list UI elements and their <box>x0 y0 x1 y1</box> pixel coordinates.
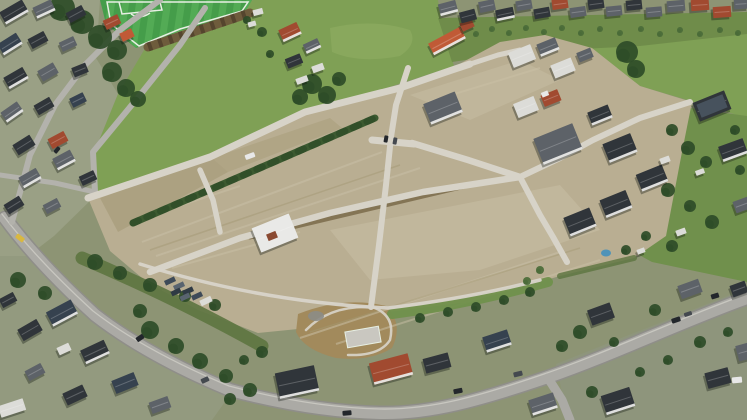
bush <box>617 30 623 36</box>
tree-canopy <box>219 374 227 382</box>
tree-canopy <box>192 359 202 369</box>
tree-canopy <box>266 53 271 58</box>
tree-canopy <box>489 28 493 32</box>
aerial-photo-stage <box>0 0 747 420</box>
tree-canopy <box>332 77 340 85</box>
tree <box>616 41 638 63</box>
tree-canopy <box>209 303 216 310</box>
tree <box>730 125 740 135</box>
bush <box>677 27 683 33</box>
tree-canopy <box>473 33 477 37</box>
tree-canopy <box>443 311 449 317</box>
tree-canopy <box>578 32 582 36</box>
tree-canopy <box>168 344 178 354</box>
tree-canopy <box>681 146 689 154</box>
bush <box>717 27 723 33</box>
tree-canopy <box>143 283 151 291</box>
tree <box>332 72 346 86</box>
tree <box>243 383 257 397</box>
tree-canopy <box>638 28 642 32</box>
bush <box>735 30 741 36</box>
tree-canopy <box>523 280 528 285</box>
tree-canopy <box>243 19 248 24</box>
tree <box>130 91 146 107</box>
tree-canopy <box>627 66 638 77</box>
tree-canopy <box>239 359 245 365</box>
bush <box>523 25 529 31</box>
tree <box>499 295 509 305</box>
tree <box>87 254 103 270</box>
tree <box>627 60 645 78</box>
tree <box>666 240 678 252</box>
tree-canopy <box>257 31 263 37</box>
tree <box>257 27 267 37</box>
tree-canopy <box>525 291 531 297</box>
bush <box>541 29 547 35</box>
tree <box>573 325 587 339</box>
house <box>688 0 709 13</box>
tree-canopy <box>224 397 231 404</box>
tree <box>641 231 651 241</box>
tree-canopy <box>243 388 251 396</box>
tree <box>684 200 696 212</box>
tree-canopy <box>499 299 505 305</box>
tree-canopy <box>609 341 615 347</box>
tree-canopy <box>735 32 739 36</box>
tree-canopy <box>621 249 627 255</box>
garden-pool <box>601 250 611 257</box>
tree <box>38 286 52 300</box>
car <box>342 410 351 416</box>
bush <box>536 266 544 274</box>
tree-canopy <box>536 269 541 274</box>
house <box>710 6 731 21</box>
bush <box>523 277 531 285</box>
tree <box>471 302 481 312</box>
tree <box>143 278 157 292</box>
tree-canopy <box>89 33 103 47</box>
tree <box>318 86 336 104</box>
tree-canopy <box>649 308 656 315</box>
bush <box>266 50 274 58</box>
tree <box>681 141 695 155</box>
tree-canopy <box>108 47 120 59</box>
tree-canopy <box>617 32 621 36</box>
tree-canopy <box>523 27 527 31</box>
tree-canopy <box>735 169 741 175</box>
tree-canopy <box>684 204 691 211</box>
tree <box>705 215 719 229</box>
tree <box>141 321 159 339</box>
tree <box>219 369 233 383</box>
tree-canopy <box>559 27 563 31</box>
tree-canopy <box>103 69 115 81</box>
tree <box>239 355 249 365</box>
tree-canopy <box>705 220 713 228</box>
tree-canopy <box>130 97 140 107</box>
bush <box>638 26 644 32</box>
house <box>731 0 747 12</box>
tree-canopy <box>717 29 721 33</box>
tree-canopy <box>677 29 681 33</box>
tree <box>621 245 631 255</box>
tree-canopy <box>113 271 121 279</box>
tree-canopy <box>663 359 669 365</box>
tree <box>635 367 645 377</box>
tree <box>443 307 453 317</box>
tree-canopy <box>117 85 128 96</box>
tree-canopy <box>292 95 302 105</box>
tree-canopy <box>700 160 707 167</box>
tree <box>586 386 598 398</box>
tree-canopy <box>697 33 701 37</box>
car <box>732 377 742 384</box>
tree <box>102 62 122 82</box>
bush <box>597 26 603 32</box>
tree <box>700 156 712 168</box>
tree-canopy <box>506 32 510 36</box>
tree-canopy <box>666 244 673 251</box>
tree-canopy <box>10 278 20 288</box>
tree-canopy <box>556 344 563 351</box>
tree-canopy <box>657 33 661 37</box>
tree <box>292 89 308 105</box>
spoil-heap <box>308 311 324 321</box>
house <box>664 0 685 15</box>
bush <box>657 31 663 37</box>
tree <box>649 304 661 316</box>
tree-canopy <box>256 350 263 357</box>
tree-canopy <box>666 128 673 135</box>
bush <box>697 31 703 37</box>
bush <box>489 26 495 32</box>
tree <box>735 165 745 175</box>
house <box>603 5 622 19</box>
tree <box>10 272 26 288</box>
tree <box>133 304 147 318</box>
tree <box>666 124 678 136</box>
tree-canopy <box>597 28 601 32</box>
tree-canopy <box>723 331 729 337</box>
tree-canopy <box>541 31 545 35</box>
tree-canopy <box>573 330 581 338</box>
bush <box>578 30 584 36</box>
tree <box>556 340 568 352</box>
tree <box>192 353 208 369</box>
bush <box>559 25 565 31</box>
tree <box>609 337 619 347</box>
tree-canopy <box>661 188 669 196</box>
tree <box>663 355 673 365</box>
tree-canopy <box>87 260 97 270</box>
tree-canopy <box>635 371 641 377</box>
house <box>623 0 642 13</box>
tree <box>525 287 535 297</box>
bush <box>473 31 479 37</box>
tree-canopy <box>641 235 647 241</box>
tree-canopy <box>38 291 46 299</box>
tree <box>224 393 236 405</box>
tree <box>723 327 733 337</box>
tree-canopy <box>694 340 701 347</box>
tree <box>168 338 184 354</box>
tree-canopy <box>133 309 141 317</box>
bush <box>506 30 512 36</box>
house <box>567 6 587 21</box>
tree-canopy <box>617 49 630 62</box>
tree <box>694 336 706 348</box>
tree <box>256 346 268 358</box>
meadow-light-patch <box>330 23 412 59</box>
house <box>643 6 662 20</box>
tree-canopy <box>730 129 736 135</box>
tree-canopy <box>318 92 329 103</box>
tree-canopy <box>471 306 477 312</box>
tree <box>113 266 127 280</box>
aerial-photo-drone-view <box>0 0 747 420</box>
tree-canopy <box>586 390 593 397</box>
tree-canopy <box>415 317 421 323</box>
tree <box>415 313 425 323</box>
